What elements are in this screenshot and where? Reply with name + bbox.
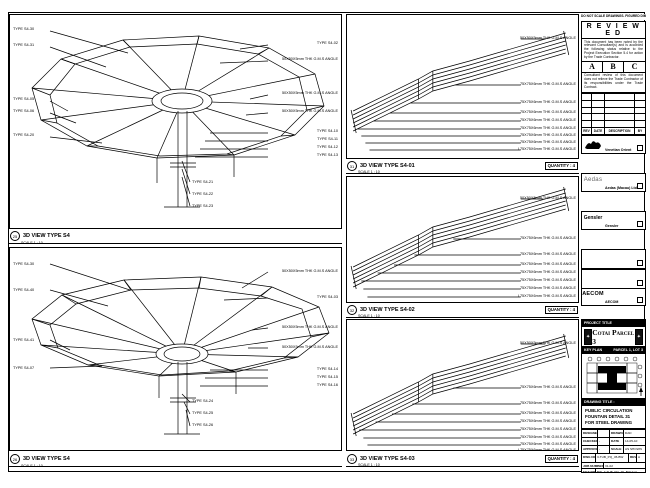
date-label: DATE (610, 438, 624, 445)
firm-name: Aedas (Macau) Ltd. (605, 186, 638, 190)
designed-value (598, 430, 610, 437)
annotation-label: TYPE S4-05 (13, 97, 34, 101)
annotation-label: 75X75X6mm THK G.M.S ANGLE (520, 252, 576, 256)
view-scale: SCALE 1 : 10 (21, 464, 43, 468)
firm-name: Venetian Orient Limited (605, 148, 631, 154)
dwg-no-label: DWG NO. : (582, 454, 596, 462)
checked-label: CHECKED (582, 438, 598, 445)
aecom-logo: AECOM (582, 288, 604, 297)
annotation-label: TYPE S4-02 (317, 41, 338, 45)
annotation-label: 75X75X6mm THK G.M.S ANGLE (520, 140, 576, 144)
edge-note: DO NOT SCALE DRAWINGS. FIGURED DIMENSION… (581, 14, 646, 20)
revision-row (582, 113, 645, 120)
revision-table: REVDATE DESCRIPTIONBY (581, 93, 646, 135)
firm-block-venetian: Venetian Orient Limited (581, 135, 646, 154)
detail-ref-bubble: 33 (347, 454, 357, 464)
reviewed-stamp-text: This document has been noted by the rele… (582, 39, 645, 61)
firm-block-aecom: AECOM AECOM (581, 287, 646, 306)
annotation-label: 75X75X6mm THK G.M.S ANGLE (520, 82, 576, 86)
scale-label: SCALE (610, 446, 624, 453)
annotation-label: 75X75X6mm THK G.M.S ANGLE (520, 100, 576, 104)
drawing-sheet: TYPE S4-30 TYPE S4-31 TYPE S4-05 TYPE S4… (8, 12, 645, 472)
project-name: Cotai Parcel 3 (592, 328, 634, 346)
annotation-label: 50X50X5mm THK G.M.S ANGLE (282, 91, 338, 95)
job-number-label: JOB NUMBER : (582, 463, 604, 468)
north-arrow-icon (639, 387, 643, 396)
annotation-label: 50X50X5mm THK G.M.S ANGLE (282, 269, 338, 273)
view-title: 3D VIEW TYPE S4-02 (360, 307, 415, 313)
firm-checkbox (637, 221, 643, 227)
view-panel-s4-02: 50X50X5mm THK G.M.S ANGLE 75X75X6mm THK … (346, 176, 579, 318)
annotation-label: 75X75X6mm THK G.M.S ANGLE (520, 401, 576, 405)
annotation-label: 75X75X6mm THK G.M.S ANGLE (520, 236, 576, 240)
annotation-label: 75X75X6mm THK G.M.S ANGLE (520, 435, 576, 439)
annotation-label: TYPE S4-31 (13, 43, 34, 47)
key-plan-map (581, 353, 646, 399)
annotation-label: TYPE S4-07 (13, 366, 34, 370)
annotation-label: TYPE S4-11 (317, 137, 338, 141)
annotation-label: TYPE S4-03 (317, 295, 338, 299)
annotation-label: 50X50X5mm THK G.M.S ANGLE (282, 345, 338, 349)
view-panel-s4-03: 50X50X5mm THK G.M.S ANGLE 75X75X6mm THK … (346, 319, 579, 467)
view-title: 3D VIEW TYPE S4 (23, 233, 70, 239)
view-scale: SCALE 1 : 10 (358, 170, 380, 174)
firm-checkbox (637, 280, 643, 286)
detail-ref-bubble: 26 (10, 454, 20, 464)
annotation-label: 75X75X6mm THK G.M.S ANGLE (520, 110, 576, 114)
firm-block-gensler: Gensler Gensler (581, 211, 646, 230)
annotation-label: TYPE S4-20 (13, 133, 34, 137)
annotation-label: L75X75X6mm THK G.M.S ANGLE (518, 294, 576, 298)
annotation-label: TYPE S4-25 (192, 411, 213, 415)
drawn-value: DAD (624, 430, 645, 437)
annotation-label: 50X50X5mm THK G.M.S ANGLE (282, 57, 338, 61)
annotation-label: 50X50X5mm THK G.M.S ANGLE (282, 325, 338, 329)
key-plan-parcel: PARCEL 1, LOT 3 (613, 348, 643, 352)
view-panel-s4-01: 50X50X5mm THK G.M.S ANGLE 75X75X6mm THK … (346, 14, 579, 174)
key-plan-drawing (582, 354, 645, 398)
firm-checkbox (637, 297, 643, 303)
firm-checkbox (637, 183, 643, 189)
view-caption: 32 3D VIEW TYPE S4-02 QUANTITY : 4 (346, 304, 579, 318)
view-panel-s4-bottom: TYPE S4-30 TYPE S4-40 TYPE S4-41 TYPE S4… (9, 247, 342, 471)
annotation-label: 75X75X6mm THK G.M.S ANGLE (520, 118, 576, 122)
checked-value: - (598, 438, 610, 445)
drawing-title-text: PUBLIC CIRCULATION FOUNTAIN DETAIL 31 FO… (581, 405, 646, 429)
wireframe-radial-canopy (10, 15, 342, 229)
project-banner: ✦ Cotai Parcel 3 ✦ (581, 326, 646, 347)
detail-ref-bubble: 31 (347, 161, 357, 171)
view-caption: 33 3D VIEW TYPE S4-03 QUANTITY : 4 (346, 453, 579, 467)
designed-label: DESIGNED (582, 430, 598, 437)
rev-label: REV : (629, 454, 637, 462)
view-title: 3D VIEW TYPE S4 (23, 456, 70, 462)
annotation-label: TYPE S4-15 (317, 375, 338, 379)
gensler-logo: Gensler (582, 212, 604, 221)
grade-a: A (582, 62, 603, 72)
date-value: 14-05-10 (624, 438, 645, 445)
detail-ref-bubble: 32 (347, 305, 357, 315)
venetian-logo-icon (582, 136, 604, 150)
annotation-label: TYPE S4-24 (192, 399, 213, 403)
annotation-label: 75X75X6mm THK G.M.S ANGLE (520, 133, 576, 137)
reviewed-stamp: R E V I E W E D This document has been n… (581, 21, 646, 93)
banner-ornament-icon: ✦ (635, 329, 643, 345)
annotation-label: L75X75X6mm THK G.M.S ANGLE (518, 147, 576, 151)
annotation-label: TYPE S4-12 (317, 145, 338, 149)
review-grade-row: A B C (582, 61, 645, 73)
quantity-tag: QUANTITY : 4 (545, 455, 578, 462)
annotation-label: TYPE S4-13 (317, 153, 338, 157)
annotation-label: TYPE S4-23 (192, 204, 213, 208)
firm-name: Gensler (605, 224, 618, 228)
annotation-label: 50X50X5mm THK G.M.S ANGLE (520, 36, 576, 40)
job-number-value: 31-02 (604, 463, 645, 468)
view-scale: SCALE 1 : 10 (358, 463, 380, 467)
firm-name: AECOM (605, 300, 618, 304)
view-title: 3D VIEW TYPE S4-03 (360, 456, 415, 462)
revision-header-row: REVDATE DESCRIPTIONBY (582, 127, 645, 134)
annotation-label: TYPE S4-06 (13, 109, 34, 113)
annotation-label: 75X75X6mm THK G.M.S ANGLE (520, 270, 576, 274)
view-panel-s4-top: TYPE S4-30 TYPE S4-31 TYPE S4-05 TYPE S4… (9, 14, 342, 246)
annotation-label: 75X75X6mm THK G.M.S ANGLE (520, 427, 576, 431)
annotation-label: 50X50X5mm THK G.M.S ANGLE (520, 196, 576, 200)
annotation-label: 75X75X6mm THK G.M.S ANGLE (520, 385, 576, 389)
drawn-label: DRAWN (610, 430, 624, 437)
firm-checkbox (637, 260, 643, 266)
annotation-label: TYPE S4-40 (13, 288, 34, 292)
annotation-label: 75X75X6mm THK G.M.S ANGLE (520, 126, 576, 130)
view-scale: SCALE 1 : 10 (358, 314, 380, 318)
annotation-label: 75X75X6mm THK G.M.S ANGLE (520, 262, 576, 266)
detail-ref-bubble: 25 (10, 231, 20, 241)
key-plan-label: KEY PLAN (584, 348, 602, 352)
file-no-label: FILE NO : (582, 469, 596, 473)
annotation-label: 75X75X6mm THK G.M.S ANGLE (520, 419, 576, 423)
file-no-value: BW_3-TUB_PQ_45_BW.dwg (596, 469, 645, 473)
revision-row (582, 107, 645, 114)
annotation-label: TYPE S4-21 (192, 180, 213, 184)
approved-label: APPROVED (582, 446, 598, 453)
annotation-label: 75X75X6mm THK G.M.S ANGLE (520, 278, 576, 282)
aedas-logo: Aedas (582, 174, 604, 183)
annotation-label: 75X75X6mm THK G.M.S ANGLE (520, 442, 576, 446)
drawing-title-line: FOR STEEL DRAWING (585, 420, 642, 426)
rev-value: A (637, 454, 645, 462)
annotation-label: 50X50X5mm THK G.M.S ANGLE (520, 341, 576, 345)
annotation-label: 75X75X6mm THK G.M.S ANGLE (520, 411, 576, 415)
scale-value: AS SHOWN (624, 446, 645, 453)
annotation-label: TYPE S4-14 (317, 367, 338, 371)
title-block-table: DESIGNED DRAWN DAD CHECKED - DATE 14-05-… (581, 429, 646, 473)
view-scale: SCALE 1 : 10 (21, 241, 43, 245)
dwg-no-value: 3-TUB_PQ_45-BW (596, 454, 629, 462)
quantity-tag: QUANTITY : 4 (545, 306, 578, 313)
firm-block-aedas: Aedas Aedas (Macau) Ltd. (581, 173, 646, 192)
annotation-label: TYPE S4-30 (13, 262, 34, 266)
view-caption: 26 3D VIEW TYPE S4 (9, 453, 342, 467)
annotation-label: 50X50X5mm THK G.M.S ANGLE (282, 109, 338, 113)
view-title: 3D VIEW TYPE S4-01 (360, 163, 415, 169)
wireframe-radial-canopy (10, 248, 342, 451)
annotation-label: TYPE S4-30 (13, 27, 34, 31)
grade-c: C (624, 62, 645, 72)
revision-row (582, 120, 645, 127)
annotation-label: TYPE S4-26 (192, 423, 213, 427)
empty-consultant-block (581, 269, 646, 289)
firm-checkbox (637, 145, 643, 151)
annotation-label: TYPE S4-41 (13, 338, 34, 342)
annotation-label: TYPE S4-22 (192, 192, 213, 196)
project-title-bar: PROJECT TITLE (581, 319, 646, 326)
annotation-label: 75X75X6mm THK G.M.S ANGLE (520, 286, 576, 290)
reviewed-stamp-title: R E V I E W E D (582, 22, 645, 39)
annotation-label: TYPE S4-10 (317, 129, 338, 133)
approved-value: - (598, 446, 610, 453)
revision-row (582, 100, 645, 107)
reviewed-stamp-text: Consultant review of this document does … (582, 73, 645, 91)
empty-consultant-block (581, 249, 646, 269)
view-caption: 31 3D VIEW TYPE S4-01 QUANTITY : 4 (346, 160, 579, 174)
banner-ornament-icon: ✦ (584, 329, 592, 345)
view-caption: 25 3D VIEW TYPE S4 (9, 230, 342, 244)
grade-b: B (603, 62, 624, 72)
annotation-label: TYPE S4-16 (317, 383, 338, 387)
quantity-tag: QUANTITY : 4 (545, 162, 578, 169)
